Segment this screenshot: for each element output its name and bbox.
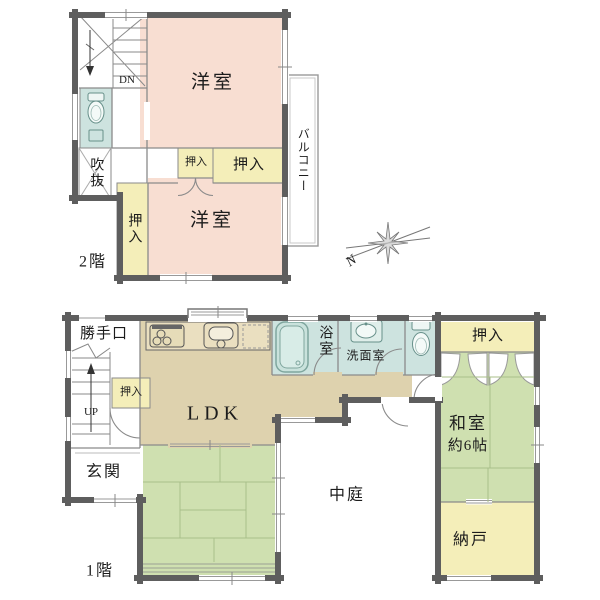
label-closet-hall: 押入 [120, 387, 142, 399]
label-closet-wide-2f: 押入 [233, 158, 265, 174]
bathtub-icon [276, 322, 308, 372]
sink-icon [204, 323, 238, 348]
compass-icon [346, 222, 430, 264]
label-bathroom: 浴室 [317, 325, 332, 357]
stairs-down-icon [80, 15, 147, 88]
label-western-room-upper: 洋室 [191, 73, 235, 93]
door-gap-bath [313, 372, 342, 378]
label-balcony: バルコニー [297, 128, 310, 193]
label-ldk: LDK [187, 404, 243, 425]
kitchen-counter [146, 322, 270, 350]
label-floor-1: 1階 [86, 564, 114, 581]
stove-icon [150, 325, 184, 347]
door-gap-wash [375, 372, 403, 378]
label-nando: 納戸 [453, 533, 489, 550]
stairs-up-icon [70, 344, 110, 445]
label-closet-left-2f: 押入 [126, 213, 141, 245]
label-washitsu-size: 約6帖 [448, 439, 489, 455]
label-stairs-up: UP [84, 407, 98, 419]
label-genkan: 玄関 [86, 465, 122, 482]
label-nakaniwa: 中庭 [329, 488, 365, 505]
label-washroom: 洗面室 [346, 350, 385, 363]
floor-plan-drawing [0, 0, 600, 600]
label-floor-2: 2階 [79, 255, 107, 272]
floor-plan: 洋室 洋室 バルコニー 吹抜 押入 押入 押入 DN 2階 N 勝手口 LDK … [0, 0, 600, 600]
door-opening-2f [144, 102, 150, 140]
second-floor [71, 9, 318, 284]
label-closet-small-2f: 押入 [185, 157, 207, 169]
label-western-room-lower: 洋室 [190, 211, 234, 231]
label-washitsu: 和室 [449, 415, 487, 433]
label-closet-washitsu: 押入 [472, 329, 504, 345]
label-atrium: 吹抜 [88, 157, 103, 189]
label-katteguchi: 勝手口 [80, 327, 128, 343]
room-tatami-ldk [143, 445, 278, 578]
toilet-icon-1f [412, 321, 430, 356]
courtyard-door-gap [381, 397, 409, 404]
washbasin-icon [351, 320, 382, 342]
label-stairs-dn: DN [119, 75, 135, 87]
washitsu-entry-gap [435, 377, 442, 401]
